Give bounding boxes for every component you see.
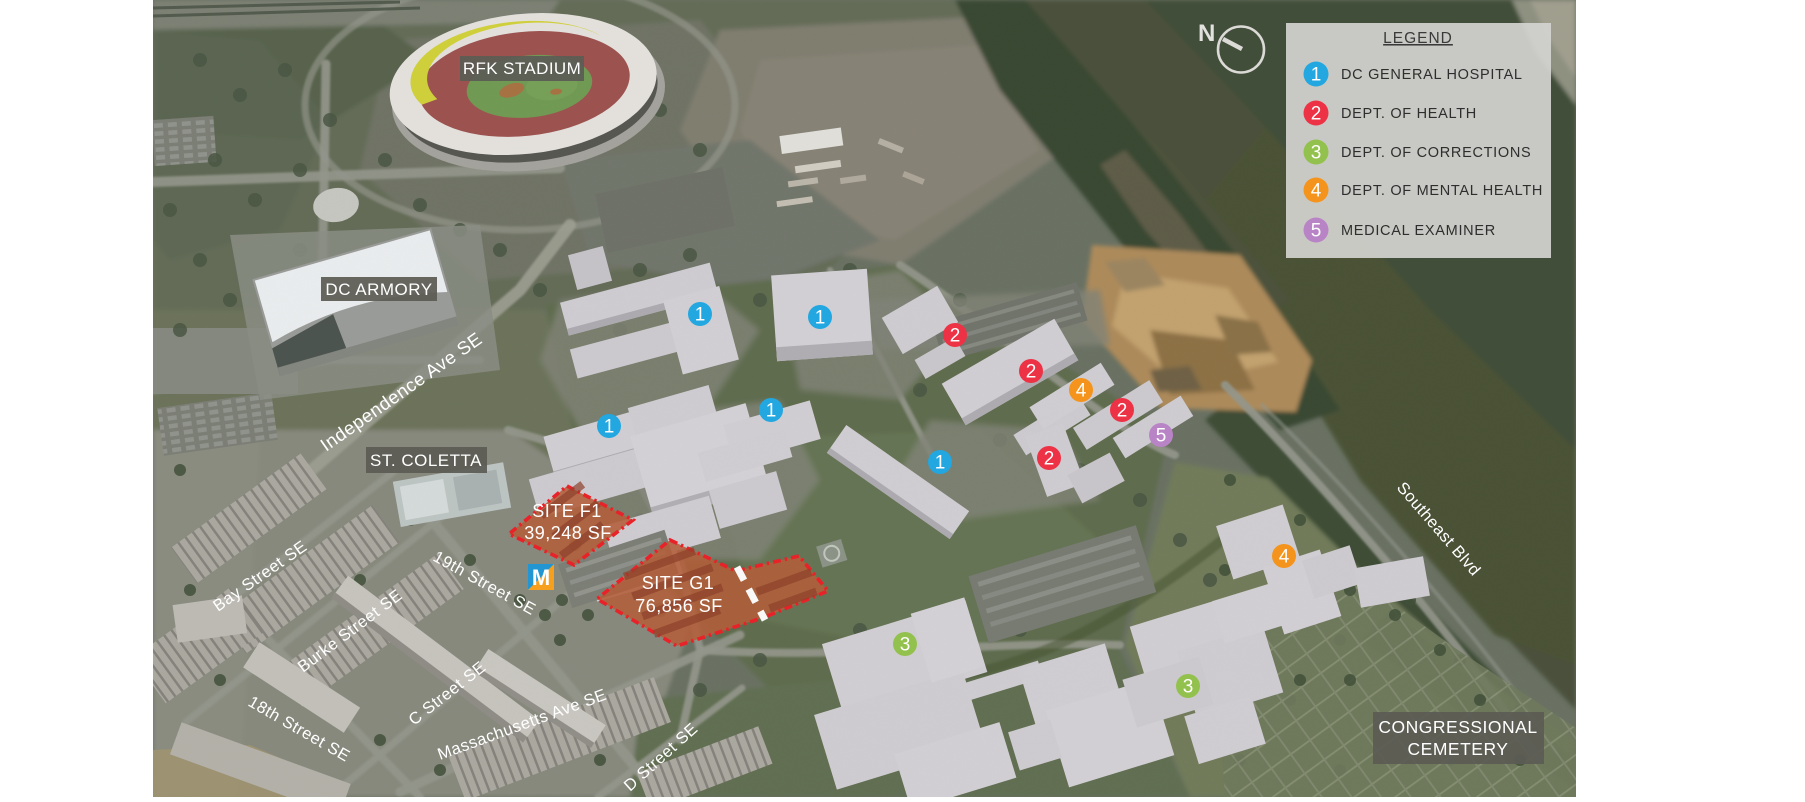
svg-text:2: 2 — [1311, 104, 1322, 125]
svg-text:DC GENERAL HOSPITAL: DC GENERAL HOSPITAL — [1341, 67, 1523, 83]
svg-text:1: 1 — [695, 305, 706, 326]
svg-text:1: 1 — [935, 453, 946, 474]
svg-text:1: 1 — [1311, 65, 1322, 86]
svg-text:4: 4 — [1279, 547, 1290, 568]
svg-text:SITE F1: SITE F1 — [532, 501, 602, 521]
svg-text:1: 1 — [766, 401, 777, 422]
svg-text:2: 2 — [1044, 449, 1055, 470]
svg-text:76,856 SF: 76,856 SF — [635, 596, 723, 616]
svg-text:CEMETERY: CEMETERY — [1408, 739, 1509, 759]
svg-text:MEDICAL EXAMINER: MEDICAL EXAMINER — [1341, 223, 1496, 239]
svg-text:N: N — [1198, 20, 1215, 47]
svg-text:3: 3 — [900, 635, 911, 656]
svg-text:DC ARMORY: DC ARMORY — [325, 280, 432, 299]
svg-text:4: 4 — [1076, 381, 1087, 402]
svg-text:DEPT. OF CORRECTIONS: DEPT. OF CORRECTIONS — [1341, 145, 1531, 161]
svg-text:2: 2 — [1026, 362, 1037, 383]
svg-text:M: M — [532, 565, 550, 590]
svg-text:CONGRESSIONAL: CONGRESSIONAL — [1378, 717, 1537, 737]
svg-text:39,248 SF: 39,248 SF — [524, 523, 612, 543]
svg-text:ST. COLETTA: ST. COLETTA — [370, 451, 482, 470]
svg-text:3: 3 — [1183, 677, 1194, 698]
svg-text:SITE G1: SITE G1 — [642, 573, 715, 593]
svg-text:4: 4 — [1311, 181, 1322, 202]
svg-text:DEPT. OF HEALTH: DEPT. OF HEALTH — [1341, 106, 1477, 122]
svg-text:LEGEND: LEGEND — [1383, 30, 1453, 47]
svg-text:1: 1 — [604, 417, 615, 438]
svg-text:2: 2 — [1117, 401, 1128, 422]
svg-text:5: 5 — [1156, 426, 1167, 447]
svg-text:DEPT. OF MENTAL HEALTH: DEPT. OF MENTAL HEALTH — [1341, 183, 1543, 199]
svg-text:3: 3 — [1311, 143, 1322, 164]
svg-text:2: 2 — [950, 326, 961, 347]
svg-text:5: 5 — [1311, 221, 1322, 242]
svg-text:RFK STADIUM: RFK STADIUM — [463, 59, 581, 78]
svg-text:1: 1 — [815, 308, 826, 329]
